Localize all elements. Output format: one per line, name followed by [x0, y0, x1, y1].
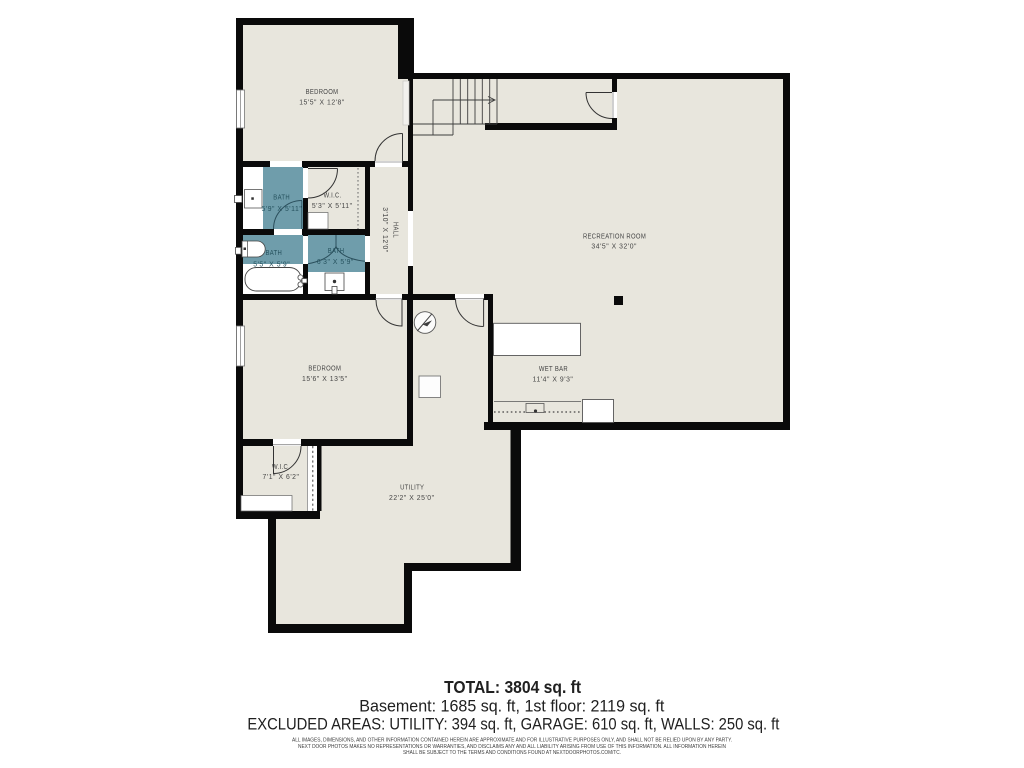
svg-text:BATH: BATH	[265, 249, 282, 257]
svg-text:22'2" X 25'0": 22'2" X 25'0"	[389, 493, 435, 502]
svg-text:HALL: HALL	[391, 222, 399, 238]
svg-text:Basement: 1685 sq. ft, 1st flo: Basement: 1685 sq. ft, 1st floor: 2119 s…	[359, 697, 664, 716]
svg-text:EXCLUDED AREAS: UTILITY: 394 s: EXCLUDED AREAS: UTILITY: 394 sq. ft, GAR…	[247, 715, 779, 734]
svg-text:TOTAL: 3804 sq. ft: TOTAL: 3804 sq. ft	[444, 677, 581, 697]
svg-text:UTILITY: UTILITY	[400, 484, 424, 492]
svg-text:ALL IMAGES, DIMENSIONS, AND OT: ALL IMAGES, DIMENSIONS, AND OTHER INFORM…	[292, 738, 732, 744]
svg-text:15'5" X 12'8": 15'5" X 12'8"	[299, 97, 345, 106]
svg-text:15'6" X 13'5": 15'6" X 13'5"	[302, 374, 348, 383]
svg-text:7'1" X 6'2": 7'1" X 6'2"	[263, 472, 300, 481]
svg-text:5'5" X 5'9": 5'5" X 5'9"	[253, 259, 290, 268]
svg-text:5'9" X 5'11": 5'9" X 5'11"	[262, 203, 303, 212]
svg-text:RECREATION ROOM: RECREATION ROOM	[583, 233, 646, 241]
svg-text:W.I.C.: W.I.C.	[324, 192, 342, 200]
svg-text:11'4" X 9'3": 11'4" X 9'3"	[533, 374, 574, 383]
svg-text:6'3" X 5'9": 6'3" X 5'9"	[317, 257, 354, 266]
svg-text:W.I.C.: W.I.C.	[272, 463, 290, 471]
svg-text:BEDROOM: BEDROOM	[308, 365, 341, 373]
svg-text:BATH: BATH	[273, 194, 290, 202]
svg-text:WET BAR: WET BAR	[539, 365, 568, 373]
svg-text:NEXT DOOR PHOTOS MAKES NO REPR: NEXT DOOR PHOTOS MAKES NO REPRESENTATION…	[298, 744, 726, 750]
svg-text:34'5" X 32'0": 34'5" X 32'0"	[591, 241, 637, 250]
svg-text:5'3" X 5'11": 5'3" X 5'11"	[312, 201, 353, 210]
svg-text:3'10" X 12'0": 3'10" X 12'0"	[381, 207, 390, 253]
svg-text:BEDROOM: BEDROOM	[306, 88, 339, 96]
svg-text:SHALL BE SUBJECT TO THE TERMS: SHALL BE SUBJECT TO THE TERMS AND CONDIT…	[403, 750, 621, 756]
svg-text:BATH: BATH	[328, 248, 345, 256]
